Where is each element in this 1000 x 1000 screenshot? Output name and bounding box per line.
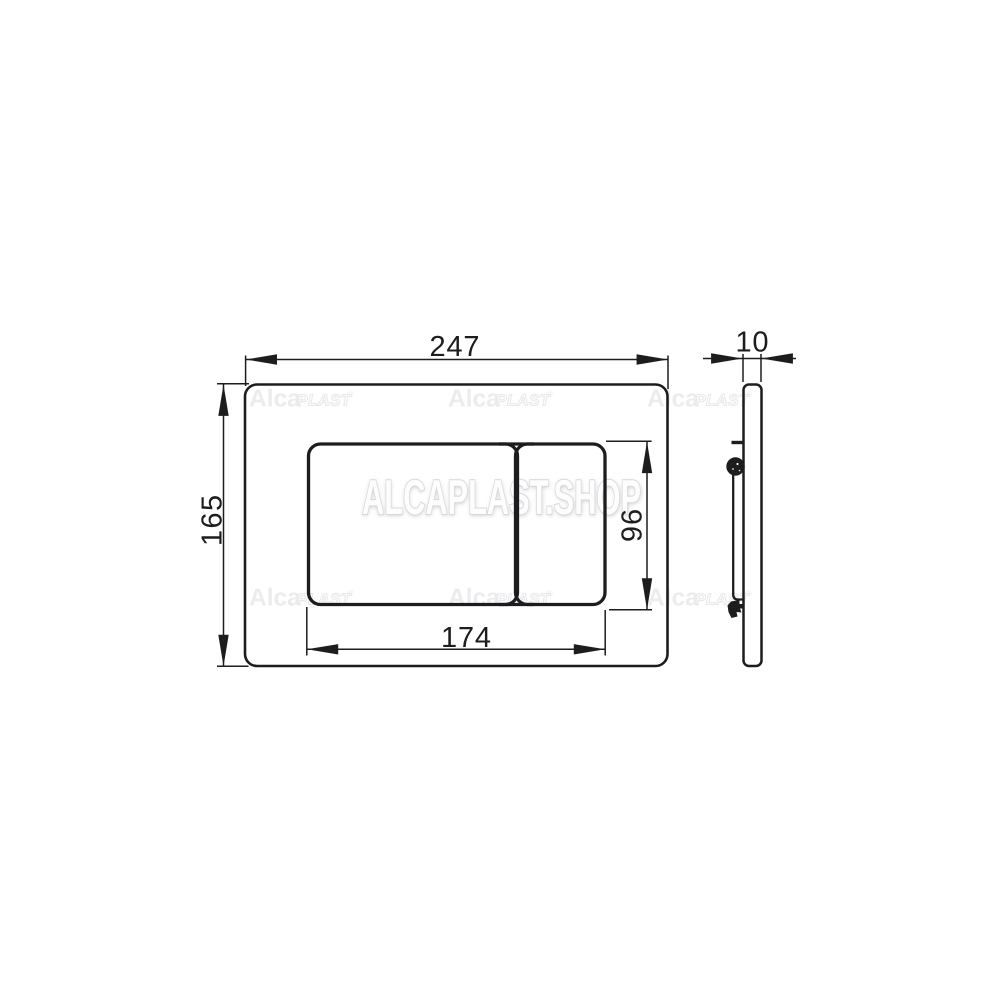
svg-text:PLAST: PLAST [695,393,750,410]
svg-text:Alca: Alca [448,386,500,413]
svg-text:ALCAPLAST.SHOP: ALCAPLAST.SHOP [362,471,641,525]
svg-text:®: ® [546,588,553,598]
svg-text:Alca: Alca [249,585,301,612]
svg-text:PLAST: PLAST [496,393,551,410]
svg-text:Alca: Alca [647,386,699,413]
svg-text:®: ® [347,389,354,399]
svg-text:®: ® [347,588,354,598]
svg-text:PLAST: PLAST [297,393,352,410]
svg-text:Alca: Alca [249,386,301,413]
svg-text:Alca: Alca [647,585,699,612]
svg-text:Alca: Alca [448,585,500,612]
svg-text:®: ® [546,389,553,399]
svg-text:®: ® [745,588,752,598]
svg-text:®: ® [745,389,752,399]
